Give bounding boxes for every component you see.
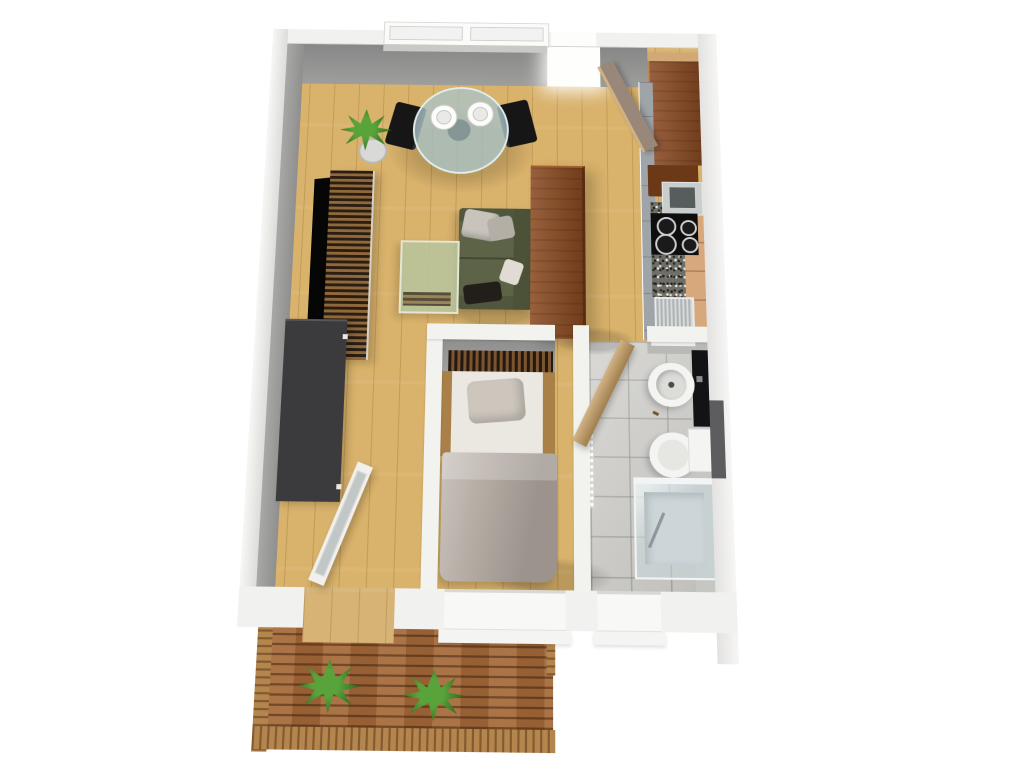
bedroom-window [444, 589, 566, 634]
burner-3 [680, 220, 697, 236]
bathroom-window [597, 591, 661, 636]
bed-blanket-cuff [442, 452, 557, 480]
balcony-railing-front [251, 726, 555, 753]
sofa-pillow-grey [486, 215, 516, 242]
wall-bedroom-top [427, 323, 555, 340]
kitchen-sink-basin [669, 187, 695, 208]
balcony-threshold [302, 587, 395, 643]
toilet-seat-inner [657, 439, 689, 470]
outer-wall-bottom-4 [661, 592, 738, 634]
bed-pillow [466, 378, 526, 425]
sink-drain [668, 382, 674, 388]
coffee-table-shelf [403, 292, 451, 306]
desk-leg-top [343, 334, 348, 339]
outer-wall-bottom-2 [394, 588, 445, 629]
vanity-faucet [696, 376, 702, 382]
outer-wall-bottom-1 [237, 586, 305, 627]
burner-4 [681, 237, 698, 253]
window-outer-sill-bathroom [593, 631, 666, 645]
shower-tray [644, 492, 706, 565]
living-window-pane-right [470, 27, 543, 42]
wall-bathroom-west [573, 325, 591, 591]
wall-mirror-dark [709, 400, 726, 478]
entry-doorway-gap [551, 32, 596, 46]
outer-wall-bottom-3 [566, 590, 598, 631]
window-outer-sill-bedroom [438, 629, 571, 644]
apartment-plan [226, 29, 745, 768]
desk-leg-bottom [336, 484, 341, 489]
wall-bathroom-top [647, 326, 707, 342]
floorplan-scene [0, 0, 1024, 768]
burner-2 [655, 234, 677, 255]
room-divider-island [530, 165, 586, 339]
plate-right-inner [473, 107, 489, 122]
entry-doorway-light [547, 46, 600, 87]
kitchen-tall-cabinet [647, 61, 703, 166]
desk [276, 319, 348, 502]
shower-frame-top [633, 477, 712, 484]
living-window-pane-left [389, 26, 463, 41]
bed-rail-right [543, 372, 555, 457]
